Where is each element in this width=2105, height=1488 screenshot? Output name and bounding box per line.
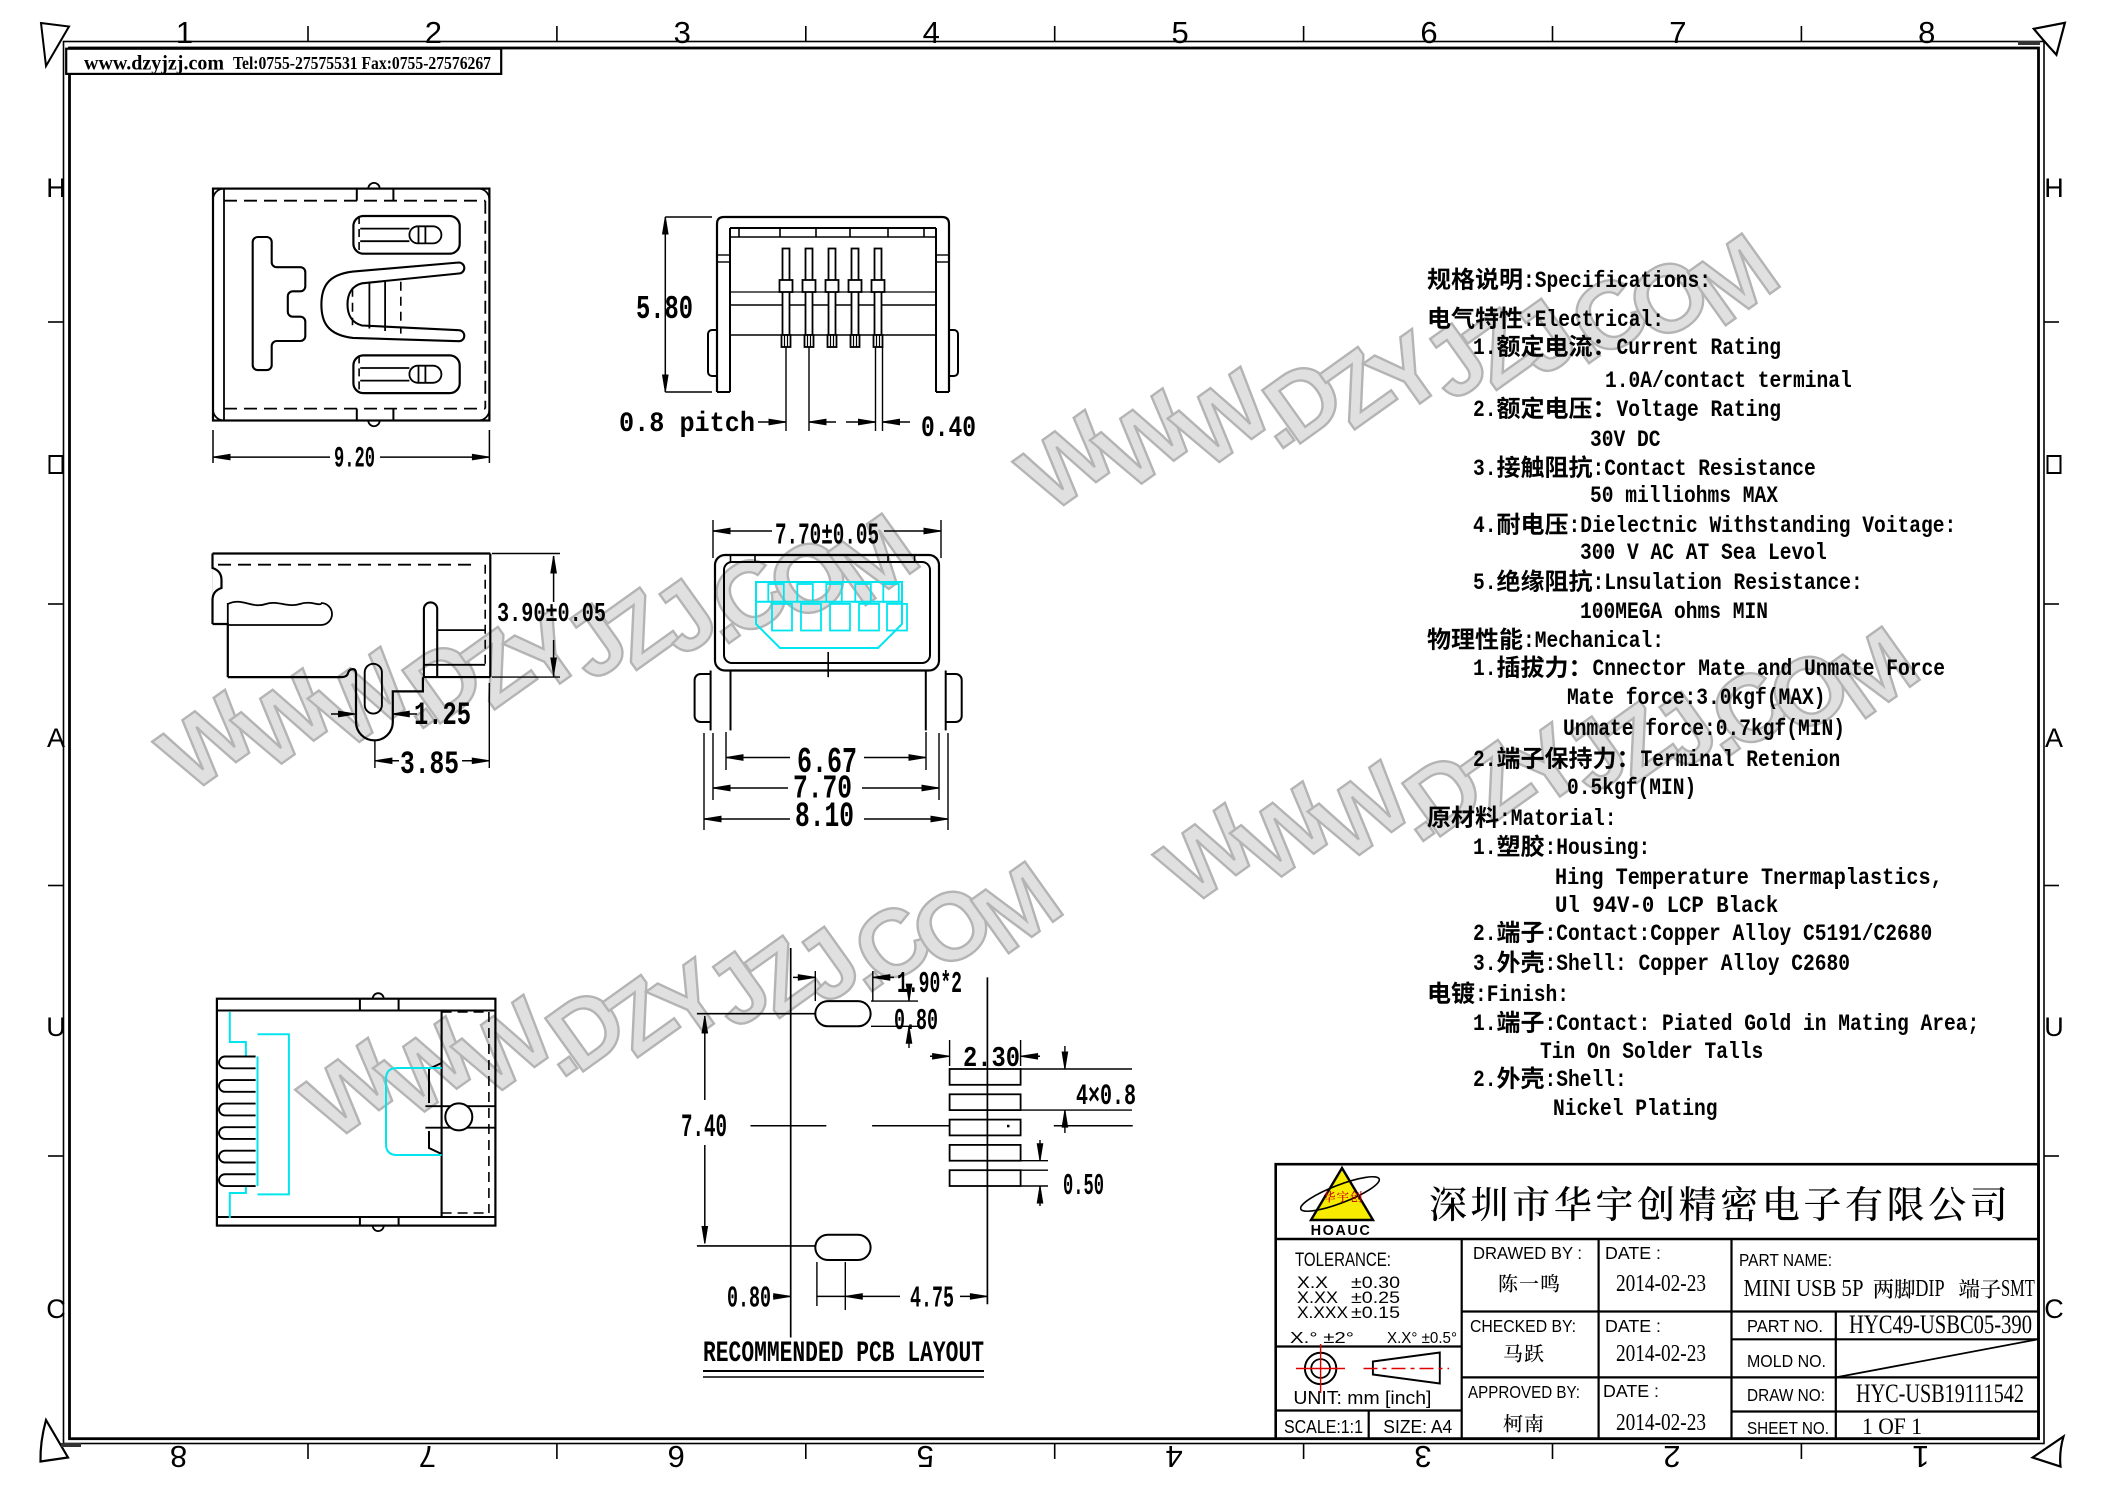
svg-text:6: 6 — [668, 1439, 685, 1474]
svg-text:Terminal Retenion: Terminal Retenion — [1641, 747, 1841, 774]
svg-text:5: 5 — [917, 1439, 934, 1474]
svg-text:DATE :: DATE : — [1603, 1381, 1659, 1401]
svg-text:RECOMMENDED PCB LAYOUT: RECOMMENDED PCB LAYOUT — [703, 1337, 984, 1371]
svg-text:2.: 2. — [1473, 747, 1497, 774]
svg-text:2.30: 2.30 — [963, 1042, 1020, 1075]
svg-text:8.10: 8.10 — [795, 797, 854, 837]
svg-text:2: 2 — [1663, 1439, 1680, 1474]
svg-text::Dielectnic Withstanding Voita: :Dielectnic Withstanding Voitage: — [1569, 513, 1957, 540]
svg-text:50 milliohms MAX: 50 milliohms MAX — [1590, 483, 1779, 510]
svg-text:0.50: 0.50 — [1063, 1169, 1104, 1204]
svg-text:0.5kgf(MIN): 0.5kgf(MIN) — [1567, 775, 1696, 802]
svg-text:3.: 3. — [1473, 456, 1497, 483]
svg-text:1.: 1. — [1473, 656, 1497, 683]
svg-text:2.: 2. — [1473, 397, 1497, 424]
svg-text:www.dzyjzj.com: www.dzyjzj.com — [84, 51, 224, 75]
svg-text:Current Rating: Current Rating — [1617, 335, 1782, 362]
svg-text:8: 8 — [170, 1439, 187, 1474]
svg-text:C: C — [46, 1294, 66, 1324]
svg-text:2014-02-23: 2014-02-23 — [1616, 1341, 1706, 1367]
svg-text:H: H — [46, 173, 66, 203]
svg-text:7: 7 — [1669, 15, 1686, 50]
svg-text::Electrical:: :Electrical: — [1523, 307, 1664, 334]
svg-text:4.75: 4.75 — [910, 1282, 954, 1317]
svg-text:SCALE:1:1: SCALE:1:1 — [1284, 1417, 1363, 1437]
svg-text:2: 2 — [425, 15, 442, 50]
svg-text:X.X° ±0.5°: X.X° ±0.5° — [1387, 1330, 1457, 1347]
svg-text::Housing:: :Housing: — [1545, 835, 1651, 862]
svg-text:Hing Temperature Tnermaplasti: Hing Temperature Tnermaplastics, — [1555, 865, 1943, 892]
svg-text:2014-02-23: 2014-02-23 — [1616, 1410, 1706, 1436]
svg-text:100MEGA ohms MIN: 100MEGA ohms MIN — [1580, 599, 1768, 626]
svg-text:SMT: SMT — [2001, 1276, 2035, 1302]
svg-text:Cnnector Mate and Unmate Force: Cnnector Mate and Unmate Force — [1593, 656, 1946, 683]
svg-text:8: 8 — [1918, 15, 1935, 50]
svg-text:2.: 2. — [1473, 1067, 1497, 1094]
svg-text:6: 6 — [1420, 15, 1437, 50]
svg-text:MOLD NO.: MOLD NO. — [1747, 1351, 1826, 1371]
svg-text:Tin On Solder Talls: Tin On Solder Talls — [1540, 1039, 1763, 1066]
svg-text:4.: 4. — [1473, 513, 1497, 540]
svg-text:300 V AC AT Sea Levol: 300 V AC AT Sea Levol — [1580, 540, 1827, 567]
svg-text:7: 7 — [419, 1439, 436, 1474]
svg-text:U: U — [2044, 1012, 2064, 1042]
svg-text:A: A — [47, 723, 65, 753]
svg-text:HYC-USB19111542: HYC-USB19111542 — [1856, 1379, 2024, 1408]
svg-text:3: 3 — [1414, 1439, 1431, 1474]
svg-text:1: 1 — [176, 15, 193, 50]
svg-text:A: A — [2045, 723, 2063, 753]
svg-text:H: H — [2044, 173, 2064, 203]
svg-text:1: 1 — [1912, 1439, 1929, 1474]
svg-text:Unmate force:0.7kgf(MIN): Unmate force:0.7kgf(MIN) — [1563, 716, 1845, 743]
svg-text:4: 4 — [1165, 1439, 1182, 1474]
svg-text:C: C — [2044, 1294, 2064, 1324]
svg-text:3: 3 — [674, 15, 691, 50]
svg-text:3.: 3. — [1473, 951, 1497, 978]
svg-text:1.: 1. — [1473, 1011, 1497, 1038]
svg-text:DATE :: DATE : — [1605, 1316, 1661, 1336]
svg-text:7.40: 7.40 — [681, 1109, 727, 1146]
svg-text:SHEET NO.: SHEET NO. — [1747, 1418, 1829, 1438]
svg-text:1.: 1. — [1473, 835, 1497, 862]
svg-text:MINI USB 5P: MINI USB 5P — [1744, 1276, 1864, 1302]
svg-text:3.90±0.05: 3.90±0.05 — [497, 600, 606, 630]
svg-text:1.25: 1.25 — [414, 697, 471, 734]
svg-text:U: U — [46, 1012, 66, 1042]
svg-text:0.80: 0.80 — [727, 1282, 771, 1317]
svg-text::Contact:Copper Alloy C5191/C2: :Contact:Copper Alloy C5191/C2680 — [1545, 921, 1933, 948]
svg-text:DRAWED BY :: DRAWED BY : — [1473, 1243, 1582, 1263]
svg-text:4×0.8: 4×0.8 — [1076, 1080, 1136, 1114]
svg-text:SIZE: A4: SIZE: A4 — [1383, 1417, 1452, 1437]
svg-text:Nickel Plating: Nickel Plating — [1553, 1096, 1718, 1123]
svg-text:Ul 94V-0 LCP Black: Ul 94V-0 LCP Black — [1555, 893, 1778, 920]
svg-text:4: 4 — [923, 15, 940, 50]
svg-text::Shell:: :Shell: — [1545, 1067, 1627, 1094]
svg-text::Contact: Piated Gold in Matin: :Contact: Piated Gold in Mating Area; — [1545, 1011, 1980, 1038]
svg-text:1 OF 1: 1 OF 1 — [1862, 1414, 1922, 1439]
svg-text:5.: 5. — [1473, 570, 1497, 597]
svg-text:X.XXX: X.XXX — [1297, 1303, 1348, 1322]
svg-text:TOLERANCE:: TOLERANCE: — [1295, 1250, 1391, 1271]
svg-text:9.20: 9.20 — [334, 443, 375, 477]
svg-text:2.: 2. — [1473, 921, 1497, 948]
svg-text:CHECKED BY:: CHECKED BY: — [1470, 1316, 1576, 1336]
svg-text:APPROVED BY:: APPROVED BY: — [1468, 1382, 1580, 1402]
svg-text:30V DC: 30V DC — [1590, 427, 1661, 454]
svg-text::Specifications:: :Specifications: — [1523, 268, 1711, 295]
svg-text:2014-02-23: 2014-02-23 — [1616, 1271, 1706, 1297]
svg-text::Finish:: :Finish: — [1475, 982, 1569, 1009]
svg-text::Shell: Copper Alloy C2680: :Shell: Copper Alloy C2680 — [1545, 951, 1851, 978]
svg-text:PART NO.: PART NO. — [1747, 1316, 1823, 1336]
svg-text:1.: 1. — [1473, 335, 1497, 362]
svg-text::Mechanical:: :Mechanical: — [1523, 628, 1664, 655]
svg-text:0.80: 0.80 — [894, 1004, 938, 1039]
svg-text:7.70±0.05: 7.70±0.05 — [775, 519, 879, 554]
svg-text:±0.15: ±0.15 — [1351, 1303, 1400, 1322]
svg-text:0.8 pitch: 0.8 pitch — [619, 409, 755, 440]
svg-text:DRAW NO:: DRAW NO: — [1747, 1385, 1825, 1405]
svg-text:HYC49-USBC05-390: HYC49-USBC05-390 — [1849, 1310, 2032, 1339]
svg-text:Tel:0755-27575531 Fax:0755-27: Tel:0755-27575531 Fax:0755-27576267 — [233, 53, 491, 73]
svg-text:1.0A/contact terminal: 1.0A/contact terminal — [1605, 368, 1852, 395]
svg-text:3.85: 3.85 — [400, 746, 459, 783]
svg-text:UNIT: mm [inch]: UNIT: mm [inch] — [1293, 1388, 1431, 1408]
svg-text:5.80: 5.80 — [636, 291, 693, 328]
svg-text:X.° ±2°: X.° ±2° — [1290, 1330, 1354, 1347]
svg-text:DATE :: DATE : — [1605, 1243, 1661, 1263]
svg-text::Matorial:: :Matorial: — [1499, 806, 1617, 833]
svg-text:HOAUC: HOAUC — [1311, 1223, 1372, 1239]
svg-text:5: 5 — [1171, 15, 1188, 50]
svg-text::Contact Resistance: :Contact Resistance — [1593, 456, 1816, 483]
svg-text:0.40: 0.40 — [921, 412, 976, 446]
svg-text:Mate force:3.0kgf(MAX): Mate force:3.0kgf(MAX) — [1567, 685, 1826, 712]
svg-text:PART NAME:: PART NAME: — [1739, 1250, 1832, 1270]
svg-text::Lnsulation Resistance:: :Lnsulation Resistance: — [1593, 570, 1863, 597]
svg-text:DIP: DIP — [1915, 1276, 1944, 1302]
svg-text:Voltage Rating: Voltage Rating — [1617, 397, 1782, 424]
